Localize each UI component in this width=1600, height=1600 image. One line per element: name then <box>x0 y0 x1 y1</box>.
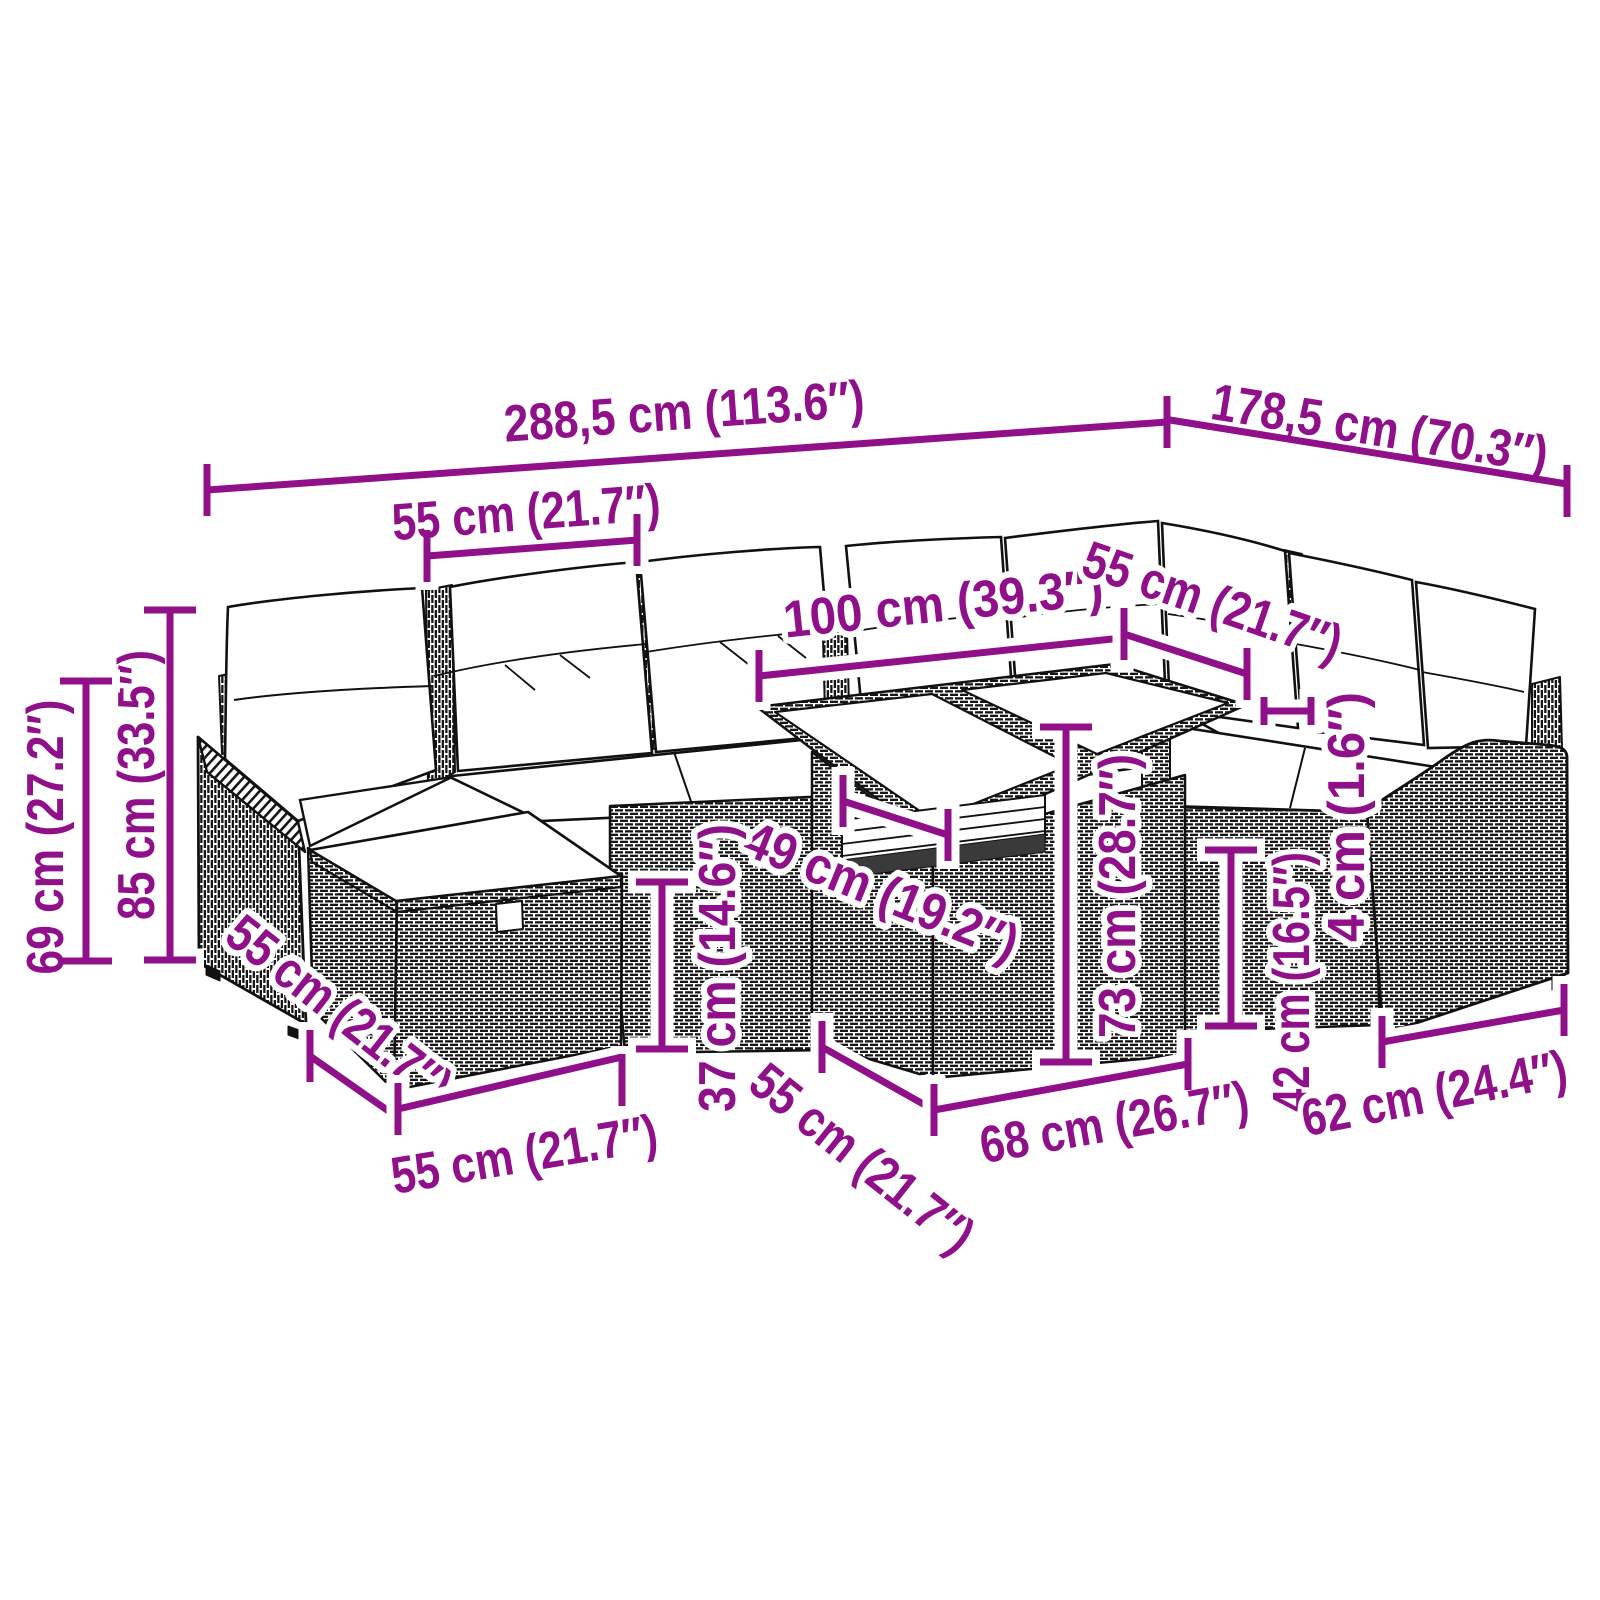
svg-text:42 cm (16.5″): 42 cm (16.5″) <box>1263 852 1321 1112</box>
svg-text:69 cm (27.2″): 69 cm (27.2″) <box>17 700 75 975</box>
svg-text:55 cm (21.7″): 55 cm (21.7″) <box>387 1104 662 1206</box>
svg-text:37 cm (14.6″): 37 cm (14.6″) <box>689 824 747 1112</box>
svg-text:4 cm (1.6″): 4 cm (1.6″) <box>1318 692 1376 942</box>
svg-text:73 cm (28.7″): 73 cm (28.7″) <box>1089 754 1147 1038</box>
svg-text:62 cm (24.4″): 62 cm (24.4″) <box>1297 1040 1572 1148</box>
svg-text:55 cm (21.7″): 55 cm (21.7″) <box>738 1052 985 1265</box>
svg-text:178,5 cm (70.3″): 178,5 cm (70.3″) <box>1207 373 1552 485</box>
